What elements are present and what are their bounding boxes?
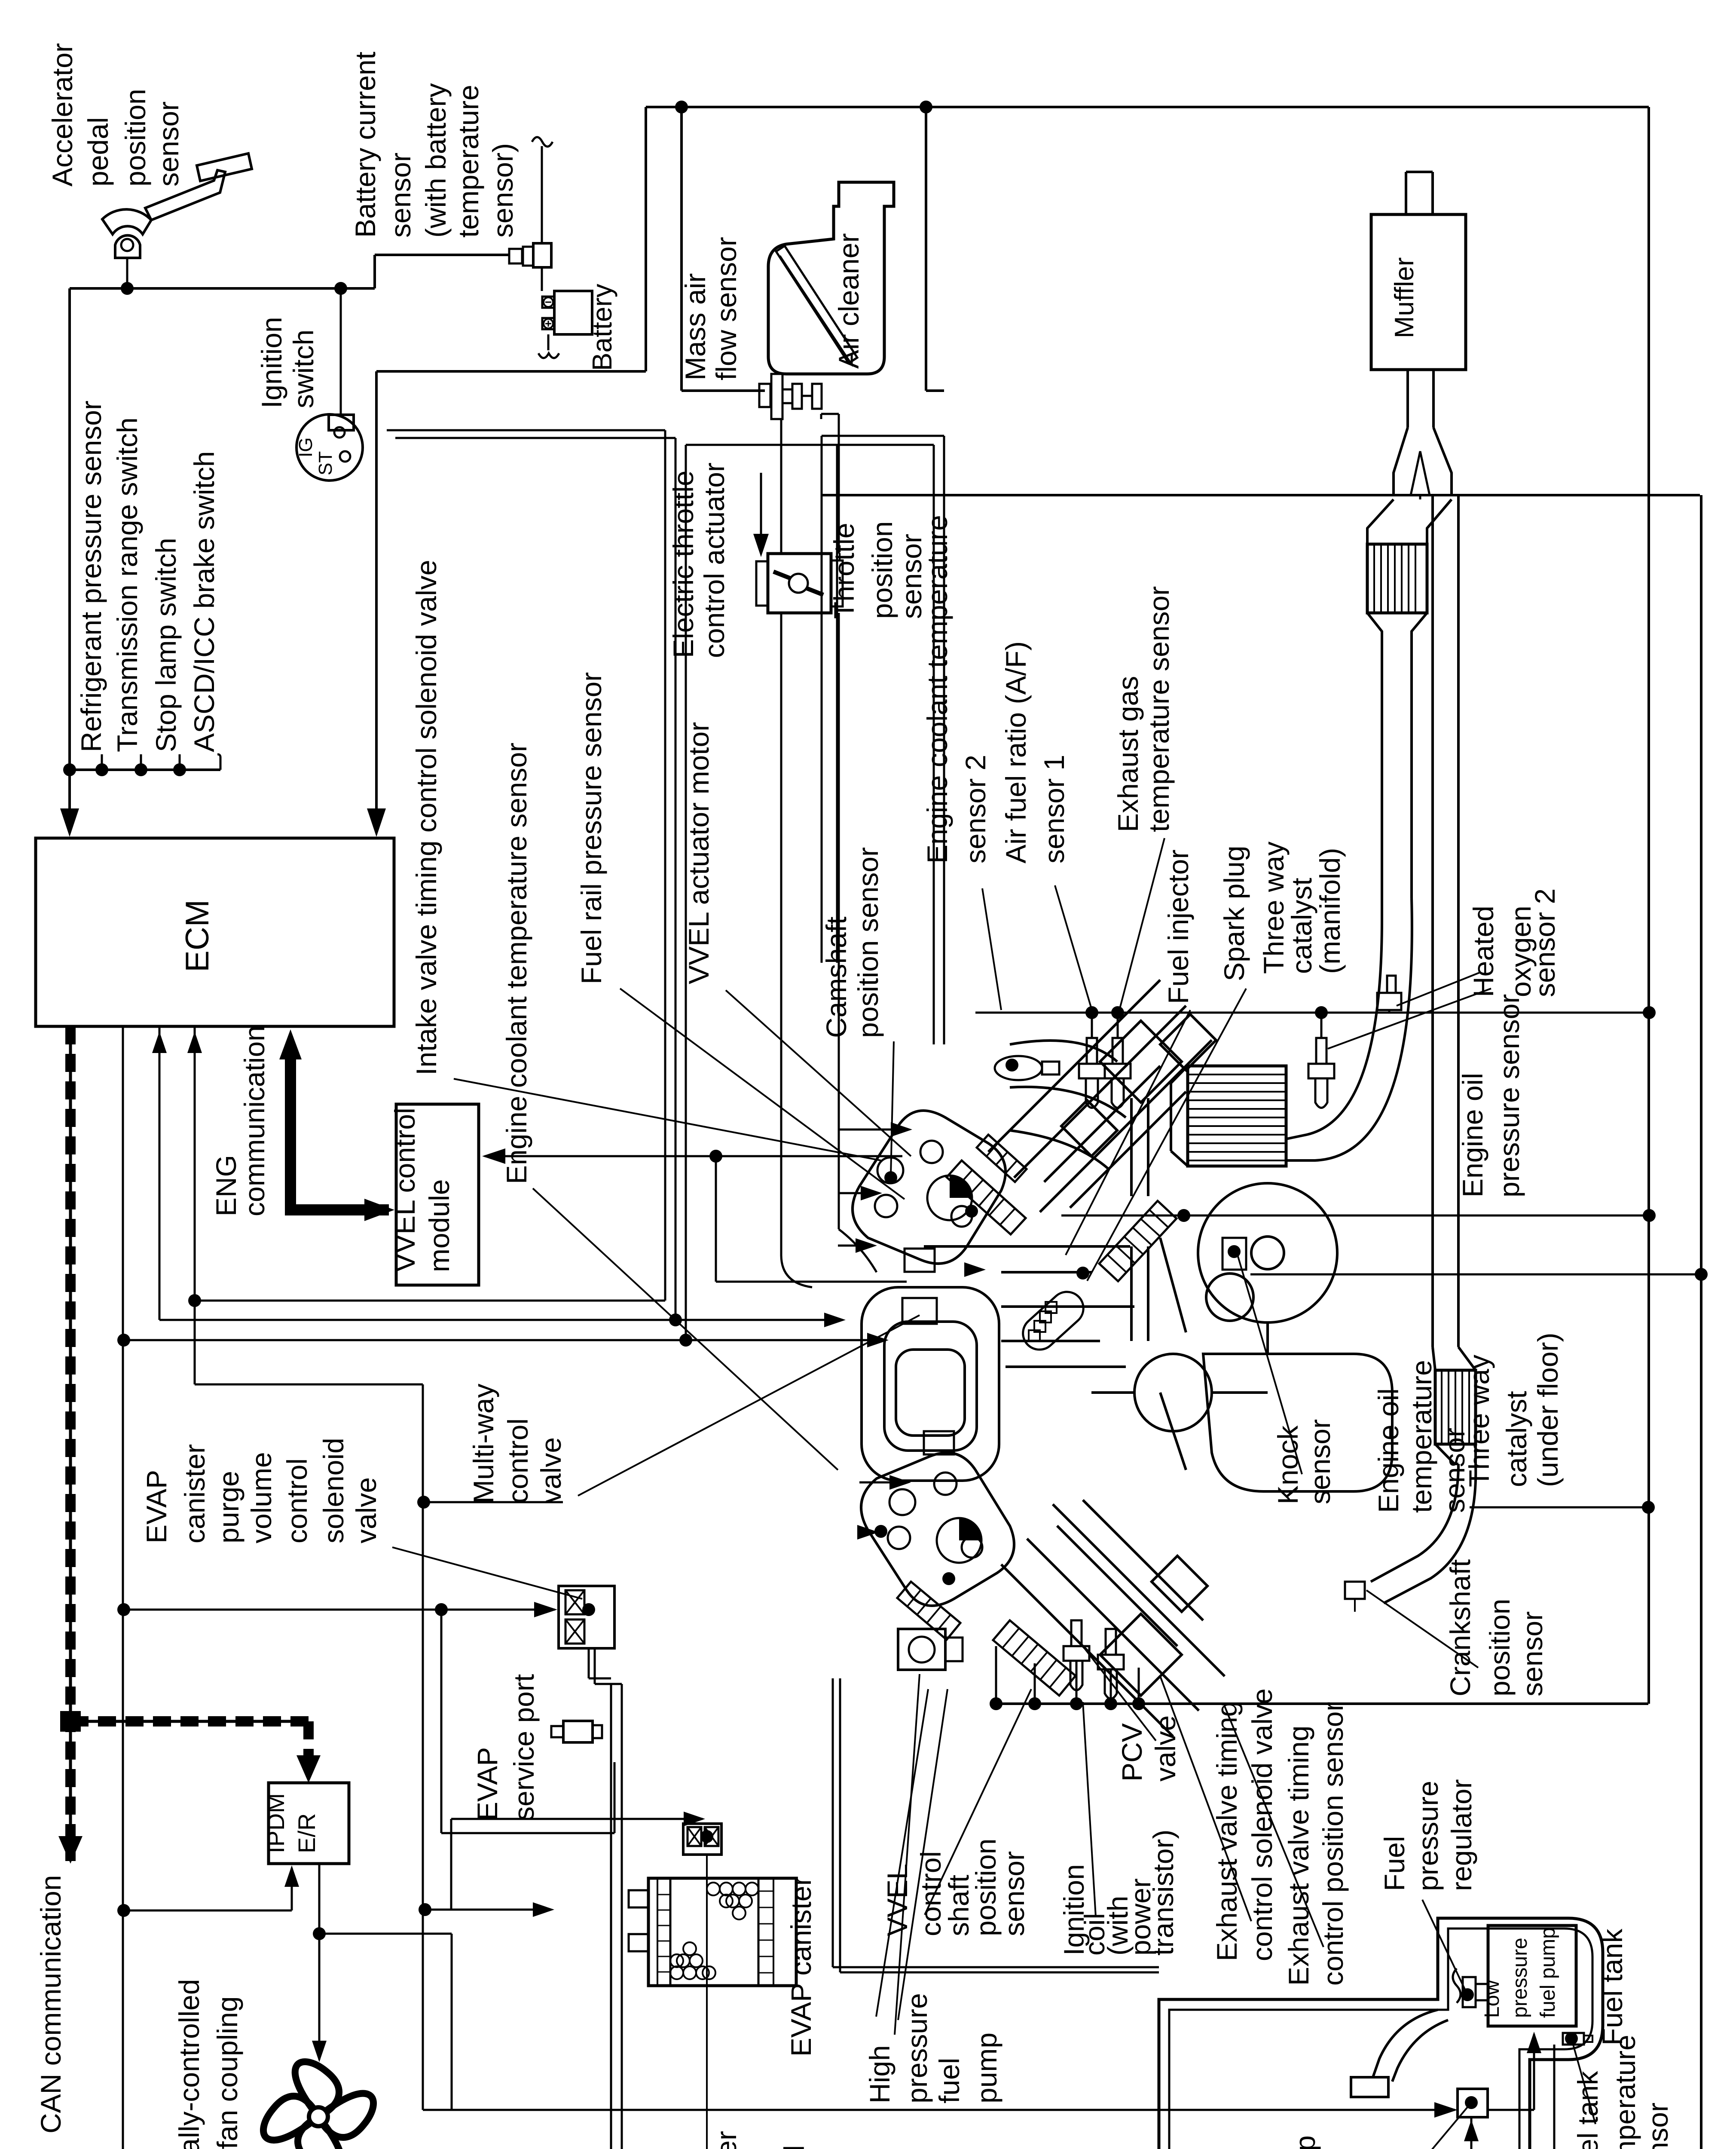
svg-text:Heated: Heated — [1467, 906, 1499, 997]
svg-text:temperature: temperature — [452, 85, 484, 238]
svg-text:cooling fan coupling: cooling fan coupling — [211, 1996, 243, 2149]
svg-text:(under floor): (under floor) — [1532, 1333, 1564, 1488]
svg-text:position: position — [119, 89, 151, 187]
svg-text:temperature: temperature — [1609, 2035, 1641, 2149]
svg-text:control: control — [778, 2145, 810, 2149]
svg-text:purge: purge — [213, 1471, 245, 1543]
svg-text:control: control — [281, 1458, 313, 1543]
svg-text:Fuel rail pressure sensor: Fuel rail pressure sensor — [575, 672, 607, 984]
svg-text:Air cleaner: Air cleaner — [833, 233, 865, 369]
svg-text:VVEL: VVEL — [881, 1864, 913, 1936]
svg-text:Exhaust gas: Exhaust gas — [1112, 676, 1144, 832]
svg-text:flow sensor: flow sensor — [710, 237, 742, 380]
svg-text:EVAP: EVAP — [141, 1470, 172, 1543]
svg-text:sensor: sensor — [1516, 1611, 1548, 1696]
svg-text:Air fuel ratio (A/F): Air fuel ratio (A/F) — [1000, 641, 1032, 863]
svg-text:Throttle: Throttle — [828, 523, 860, 619]
svg-text:switch: switch — [287, 330, 319, 408]
svg-text:control: control — [915, 1851, 947, 1936]
svg-text:pedal: pedal — [82, 117, 114, 187]
svg-text:sensor: sensor — [153, 101, 184, 187]
svg-text:sensor 2: sensor 2 — [960, 755, 991, 863]
svg-text:sensor: sensor — [385, 153, 416, 238]
svg-text:pump: pump — [971, 2033, 1002, 2103]
svg-text:PCV: PCV — [1116, 1723, 1148, 1782]
svg-text:temperature: temperature — [1406, 1360, 1437, 1513]
svg-text:Three way: Three way — [1258, 842, 1290, 974]
svg-text:volume: volume — [245, 1452, 277, 1543]
svg-text:module: module — [423, 1179, 455, 1272]
svg-text:ENG: ENG — [210, 1155, 242, 1216]
svg-text:Battery current: Battery current — [349, 52, 381, 238]
svg-text:sensor 2: sensor 2 — [1529, 888, 1561, 997]
svg-text:pressure: pressure — [901, 1993, 933, 2103]
svg-text:Electrically-controlled: Electrically-controlled — [173, 1979, 205, 2149]
svg-text:Fuel pump: Fuel pump — [1289, 2135, 1321, 2149]
svg-text:sensor: sensor — [1642, 2103, 1674, 2149]
svg-text:regulator: regulator — [1446, 1779, 1477, 1892]
svg-text:Engine coolant temperature sen: Engine coolant temperature sensor — [501, 743, 532, 1184]
svg-text:ECM: ECM — [179, 900, 216, 972]
svg-text:fuel pump: fuel pump — [1537, 1927, 1559, 2018]
svg-text:valve: valve — [535, 1437, 567, 1503]
svg-text:Ignition: Ignition — [256, 317, 287, 408]
svg-text:control actuator: control actuator — [698, 462, 730, 658]
svg-text:(with battery: (with battery — [420, 83, 452, 238]
svg-text:Spark plug: Spark plug — [1218, 845, 1250, 981]
svg-text:pressure: pressure — [1412, 1781, 1444, 1891]
svg-text:Engine coolant temperature: Engine coolant temperature — [921, 515, 953, 863]
svg-text:EVAP: EVAP — [471, 1747, 503, 1821]
svg-text:solenoid: solenoid — [318, 1438, 349, 1543]
svg-text:Exhaust valve timing: Exhaust valve timing — [1283, 1726, 1314, 1986]
svg-text:temperature sensor: temperature sensor — [1143, 586, 1175, 832]
svg-text:Engine oil: Engine oil — [1372, 1388, 1404, 1513]
svg-text:pressure: pressure — [1509, 1938, 1531, 2018]
svg-text:(manifold): (manifold) — [1314, 848, 1346, 974]
svg-text:service port: service port — [508, 1674, 540, 1821]
svg-text:Crankshaft: Crankshaft — [1444, 1559, 1476, 1696]
svg-text:IG: IG — [295, 438, 316, 457]
svg-text:Multi-way: Multi-way — [468, 1384, 499, 1503]
svg-text:sensor): sensor) — [487, 143, 519, 238]
svg-text:Mass air: Mass air — [679, 273, 711, 380]
svg-text:canister: canister — [179, 1444, 211, 1543]
svg-text:IPDM: IPDM — [262, 1793, 289, 1853]
svg-text:catalyst: catalyst — [1501, 1391, 1532, 1487]
svg-text:Camshaft: Camshaft — [820, 917, 852, 1038]
svg-text:pressure sensor: pressure sensor — [1493, 994, 1525, 1197]
svg-text:Fuel tank: Fuel tank — [1572, 2071, 1604, 2149]
svg-text:Engine oil: Engine oil — [1457, 1073, 1488, 1197]
svg-text:VVEL actuator motor: VVEL actuator motor — [683, 722, 715, 984]
svg-text:Electric throttle: Electric throttle — [667, 471, 699, 658]
svg-text:control: control — [502, 1418, 534, 1503]
svg-text:catalyst: catalyst — [1286, 878, 1317, 974]
svg-text:Stop lamp switch: Stop lamp switch — [150, 538, 182, 752]
svg-text:Fuel: Fuel — [1378, 1836, 1410, 1891]
svg-text:VVEL control: VVEL control — [389, 1108, 421, 1272]
svg-text:Accelerator: Accelerator — [46, 43, 78, 187]
svg-text:Transmission range switch: Transmission range switch — [111, 417, 143, 752]
svg-text:EVAP canister: EVAP canister — [785, 1877, 817, 2057]
svg-text:sensor: sensor — [998, 1851, 1030, 1936]
svg-text:communication: communication — [238, 1026, 270, 1216]
svg-text:High: High — [864, 2045, 896, 2103]
svg-text:ST: ST — [315, 451, 336, 475]
svg-text:valve: valve — [1149, 1715, 1181, 1782]
svg-text:sensor 1: sensor 1 — [1038, 755, 1070, 863]
svg-text:canister: canister — [710, 2131, 742, 2149]
svg-text:Refrigerant pressure sensor: Refrigerant pressure sensor — [75, 401, 107, 752]
svg-text:position: position — [1484, 1599, 1516, 1697]
svg-text:Muffler: Muffler — [1390, 257, 1419, 338]
svg-text:Fuel tank: Fuel tank — [1596, 1929, 1628, 2045]
svg-text:ASCD/ICC brake switch: ASCD/ICC brake switch — [188, 451, 220, 752]
svg-text:CAN communication: CAN communication — [35, 1875, 67, 2134]
svg-text:Low: Low — [1481, 1980, 1504, 2018]
svg-text:fuel: fuel — [933, 2058, 965, 2103]
svg-text:Intake valve timing control so: Intake valve timing control solenoid val… — [410, 560, 442, 1075]
svg-text:Fuel injector: Fuel injector — [1162, 850, 1194, 1004]
svg-text:position sensor: position sensor — [852, 847, 884, 1038]
svg-text:E/R: E/R — [293, 1813, 320, 1853]
svg-text:position: position — [866, 521, 898, 619]
svg-text:valve: valve — [350, 1477, 382, 1543]
svg-text:Battery: Battery — [587, 284, 617, 371]
svg-text:position: position — [970, 1839, 1002, 1937]
svg-text:transistor): transistor) — [1147, 1830, 1179, 1956]
